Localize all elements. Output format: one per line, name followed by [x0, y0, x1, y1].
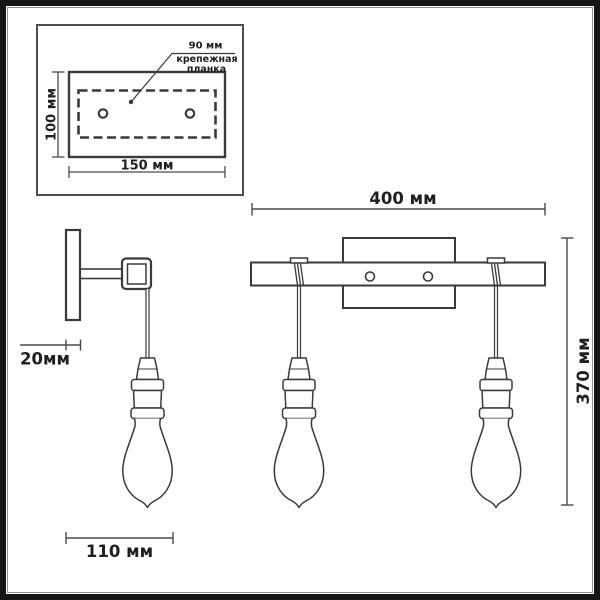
label-side-depth: 20мм: [20, 350, 70, 369]
screw-hole-left: [99, 109, 107, 117]
backplate-front-inset: [69, 72, 225, 157]
cord-front-right: [495, 286, 498, 358]
label-inset-height: 100 мм: [45, 88, 60, 141]
cord-front-left: [298, 286, 301, 358]
screw-hole-right: [186, 109, 194, 117]
label-hole-spacing: 90 мм: [189, 41, 223, 52]
label-front-height: 370 мм: [574, 337, 593, 404]
technical-drawing-canvas: 90 мм крепежная планка 100 мм 150 мм 20м…: [0, 0, 600, 600]
bar-screw-right: [424, 272, 433, 281]
label-mounting-strap-line2: планка: [187, 64, 226, 75]
arm-side: [80, 269, 122, 279]
label-inset-width: 150 мм: [121, 159, 174, 174]
cord-side: [146, 289, 149, 359]
label-bulb-width: 110 мм: [86, 542, 153, 561]
label-front-width: 400 мм: [369, 189, 436, 208]
wall-plate-side: [66, 230, 80, 320]
bar-screw-left: [366, 272, 375, 281]
